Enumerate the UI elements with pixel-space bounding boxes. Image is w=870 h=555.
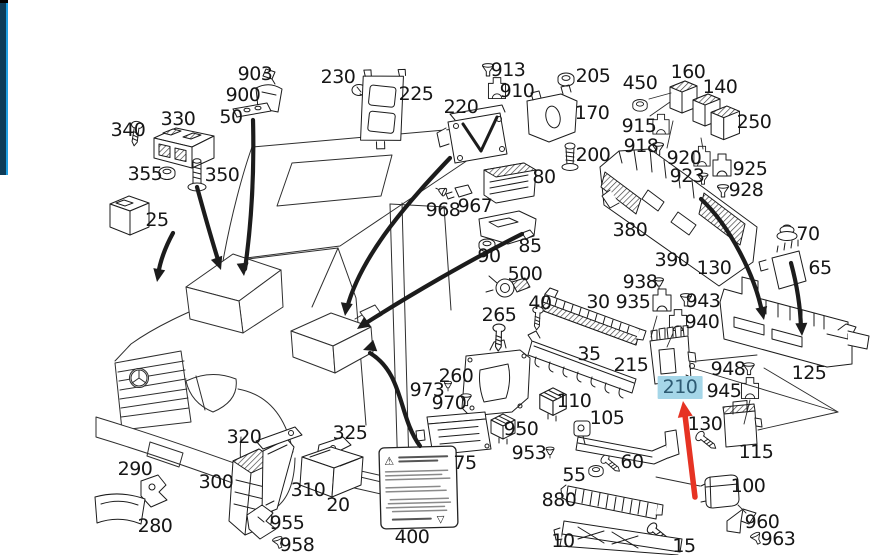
part-callout[interactable]: 945 <box>707 382 742 401</box>
part-callout[interactable]: 60 <box>620 453 643 472</box>
part-callout[interactable]: 915 <box>622 117 657 136</box>
part-callout[interactable]: 50 <box>219 108 242 127</box>
part-callout[interactable]: 925 <box>733 160 768 179</box>
part-callout[interactable]: 390 <box>655 251 690 270</box>
part-callout[interactable]: 15 <box>672 537 695 555</box>
part-callout[interactable]: 230 <box>321 68 356 87</box>
part-callout[interactable]: 958 <box>280 536 315 555</box>
part-callout[interactable]: 100 <box>731 477 766 496</box>
part-callout[interactable]: 918 <box>624 137 659 156</box>
part-callout[interactable]: 380 <box>613 221 648 240</box>
sticker-bottom-triangle-icon: ▽ <box>437 514 445 525</box>
warning-triangle-icon: ⚠ <box>384 455 394 468</box>
part-callout[interactable]: 340 <box>111 121 146 140</box>
part-callout[interactable]: 938 <box>623 273 658 292</box>
part-callout[interactable]: 110 <box>557 392 592 411</box>
part-callout[interactable]: 140 <box>703 78 738 97</box>
part-callout[interactable]: 125 <box>792 364 827 383</box>
part-callout[interactable]: 220 <box>444 98 479 117</box>
part-callout[interactable]: 970 <box>432 394 467 413</box>
part-callout[interactable]: 953 <box>512 444 547 463</box>
part-callout[interactable]: 300 <box>199 473 234 492</box>
part-callout[interactable]: 20 <box>326 496 349 515</box>
part-callout[interactable]: 280 <box>138 517 173 536</box>
part-callout[interactable]: 923 <box>670 167 705 186</box>
part-callout[interactable]: 955 <box>270 514 305 533</box>
part-callout-selected[interactable]: 210 <box>658 376 703 399</box>
part-callout[interactable]: 963 <box>761 530 796 549</box>
parts-catalog-page: ⚠ ▽ <box>0 0 870 555</box>
part-callout[interactable]: 55 <box>562 466 585 485</box>
part-callout[interactable]: 70 <box>796 225 819 244</box>
part-callout[interactable]: 913 <box>491 61 526 80</box>
part-callout[interactable]: 330 <box>161 110 196 129</box>
part-callout[interactable]: 290 <box>118 460 153 479</box>
part-callout[interactable]: 40 <box>528 294 551 313</box>
part-callout[interactable]: 940 <box>685 313 720 332</box>
part-callout[interactable]: 115 <box>739 443 774 462</box>
part-callout[interactable]: 85 <box>518 237 541 256</box>
part-callout[interactable]: 400 <box>395 528 430 547</box>
part-callout[interactable]: 948 <box>711 360 746 379</box>
part-callout[interactable]: 35 <box>577 345 600 364</box>
part-callout[interactable]: 500 <box>508 265 543 284</box>
part-callout[interactable]: 160 <box>671 63 706 82</box>
part-callout[interactable]: 928 <box>729 181 764 200</box>
part-callout[interactable]: 215 <box>614 356 649 375</box>
part-callout[interactable]: 967 <box>458 197 493 216</box>
part-callout[interactable]: 80 <box>532 168 555 187</box>
part-callout[interactable]: 130 <box>697 259 732 278</box>
part-callout[interactable]: 900 <box>226 86 261 105</box>
part-callout[interactable]: 310 <box>291 481 326 500</box>
part-callout[interactable]: 325 <box>333 424 368 443</box>
part-callout[interactable]: 225 <box>399 85 434 104</box>
part-callout[interactable]: 943 <box>686 292 721 311</box>
part-callout[interactable]: 250 <box>737 113 772 132</box>
part-callout[interactable]: 205 <box>576 67 611 86</box>
part-callout[interactable]: 170 <box>575 104 610 123</box>
part-callout[interactable]: 130 <box>688 415 723 434</box>
part-callout[interactable]: 903 <box>238 65 273 84</box>
part-callout[interactable]: 30 <box>586 293 609 312</box>
part-callout[interactable]: 10 <box>551 532 574 551</box>
part-callout[interactable]: 65 <box>808 259 831 278</box>
part-callout[interactable]: 75 <box>453 454 476 473</box>
part-callout[interactable]: 320 <box>227 428 262 447</box>
part-callout[interactable]: 350 <box>205 166 240 185</box>
part-callout[interactable]: 200 <box>576 146 611 165</box>
part-callout[interactable]: 450 <box>623 74 658 93</box>
part-callout[interactable]: 950 <box>504 420 539 439</box>
warning-sticker: ⚠ ▽ <box>379 446 458 529</box>
part-callout[interactable]: 935 <box>616 293 651 312</box>
part-callout[interactable]: 90 <box>477 247 500 266</box>
part-callout[interactable]: 910 <box>500 82 535 101</box>
part-callout[interactable]: 105 <box>590 409 625 428</box>
part-callout[interactable]: 265 <box>482 306 517 325</box>
part-callout[interactable]: 968 <box>426 201 461 220</box>
part-callout[interactable]: 880 <box>542 491 577 510</box>
part-callout[interactable]: 25 <box>145 211 168 230</box>
part-callout[interactable]: 355 <box>128 165 163 184</box>
